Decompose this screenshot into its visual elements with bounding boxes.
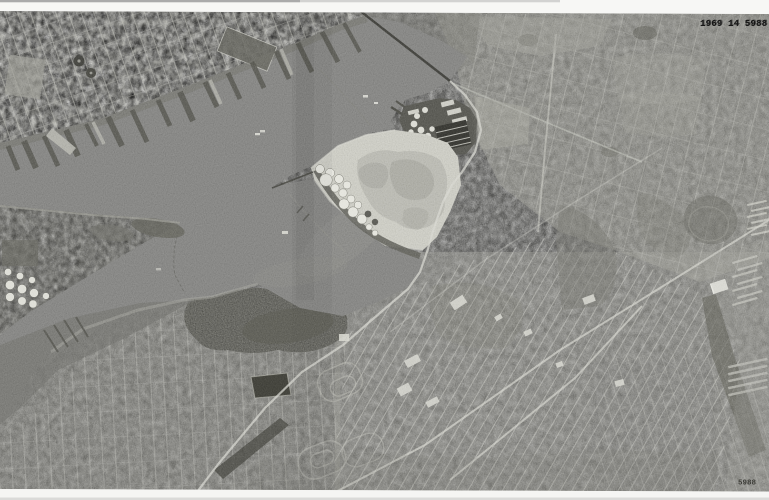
- svg-text:5988: 5988: [738, 480, 757, 488]
- svg-text:1969 14 5988: 1969 14 5988: [701, 18, 768, 28]
